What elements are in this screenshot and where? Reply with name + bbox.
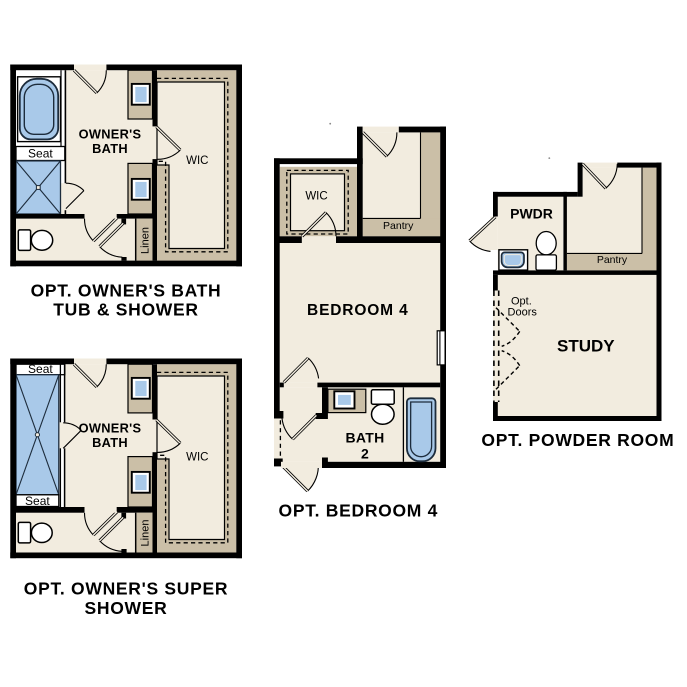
svg-text:Pantry: Pantry	[383, 220, 414, 232]
svg-text:STUDY: STUDY	[557, 336, 615, 355]
svg-text:OPT. OWNER'S BATH: OPT. OWNER'S BATH	[31, 281, 222, 301]
svg-text:BATH: BATH	[345, 429, 384, 445]
svg-text:PWDR: PWDR	[510, 206, 553, 222]
svg-text:Doors: Doors	[508, 307, 538, 319]
svg-text:SHOWER: SHOWER	[85, 598, 168, 618]
svg-text:BATH: BATH	[92, 141, 128, 156]
svg-text:BEDROOM 4: BEDROOM 4	[307, 302, 409, 319]
svg-text:OPT. POWDER ROOM: OPT. POWDER ROOM	[481, 430, 674, 450]
svg-text:WIC: WIC	[186, 452, 208, 464]
svg-text:Pantry: Pantry	[597, 254, 628, 266]
svg-text:BATH: BATH	[92, 435, 128, 450]
svg-text:OWNER'S: OWNER'S	[79, 421, 142, 436]
svg-text:WIC: WIC	[186, 155, 208, 167]
svg-text:2: 2	[361, 445, 369, 461]
svg-text:Seat: Seat	[25, 494, 50, 508]
svg-text:Linen: Linen	[139, 227, 151, 254]
svg-text:OWNER'S: OWNER'S	[79, 127, 142, 142]
svg-text:OPT. BEDROOM 4: OPT. BEDROOM 4	[279, 501, 439, 521]
svg-text:OPT. OWNER'S SUPER: OPT. OWNER'S SUPER	[24, 578, 228, 598]
svg-text:TUB & SHOWER: TUB & SHOWER	[53, 300, 198, 320]
svg-text:WIC: WIC	[305, 191, 327, 203]
svg-text:Seat: Seat	[28, 146, 53, 160]
svg-text:Linen: Linen	[139, 520, 151, 547]
